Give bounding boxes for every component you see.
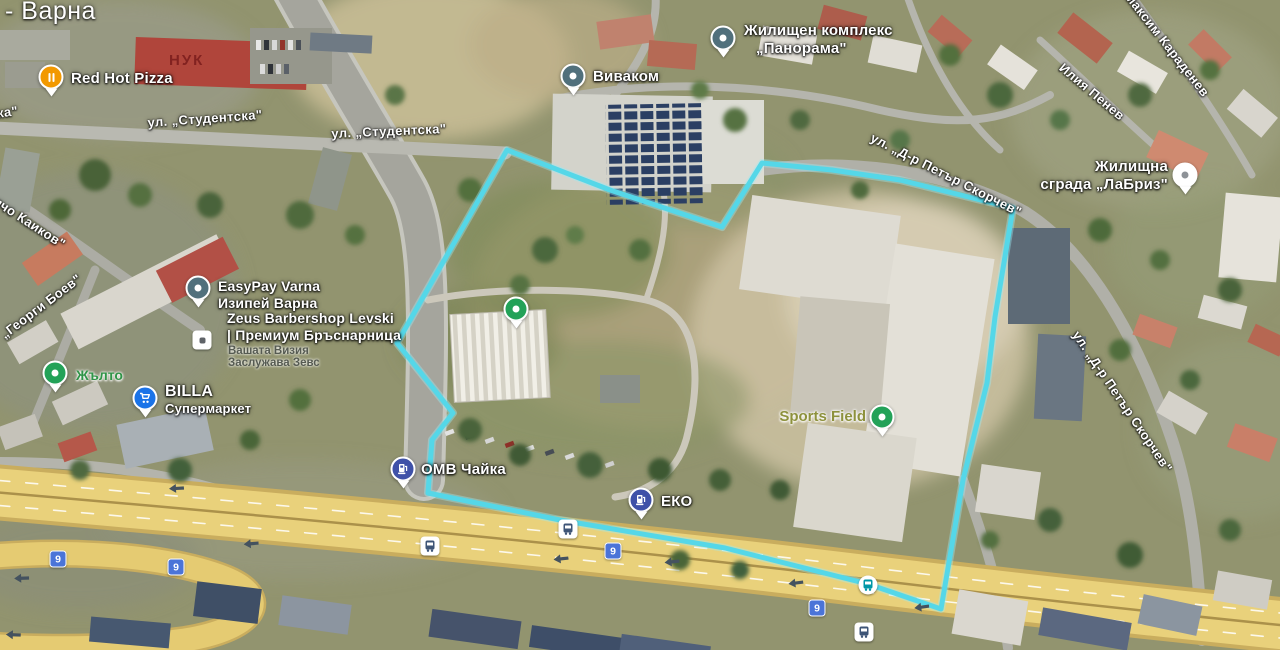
left-arrow-icon bbox=[243, 535, 260, 554]
poi-label-labriz-line2[interactable]: сграда „ЛаБриз" bbox=[1022, 176, 1168, 193]
poi-label-zeus-line2[interactable]: | Премиум Бръснарница bbox=[227, 327, 401, 343]
poi-pin-sports-field[interactable] bbox=[870, 405, 895, 430]
bus-icon bbox=[862, 579, 875, 592]
poi-label-billa-sub[interactable]: Супермаркет bbox=[165, 401, 251, 416]
left-arrow-icon bbox=[664, 553, 681, 572]
left-arrow-icon bbox=[553, 550, 570, 569]
scissors-icon bbox=[199, 337, 205, 343]
poi-label-vivacom[interactable]: Виваком bbox=[593, 68, 659, 85]
place-dot-icon bbox=[195, 285, 202, 292]
place-dot-icon bbox=[52, 370, 59, 377]
place-dot-icon bbox=[570, 73, 577, 80]
poi-label-zeus-line3: Вашата Визия bbox=[228, 345, 309, 357]
fuel-pump-icon bbox=[397, 463, 410, 476]
poi-pin-zhalto[interactable] bbox=[43, 361, 68, 386]
poi-pin-eko[interactable] bbox=[629, 488, 654, 513]
route-shield-label: 9 bbox=[610, 545, 616, 557]
poi-pin-red-hot-pizza[interactable] bbox=[39, 65, 64, 90]
route-shield-9: 9 bbox=[605, 543, 622, 560]
left-arrow-icon bbox=[913, 598, 930, 618]
street-label-partial: ка" bbox=[0, 103, 19, 121]
place-dot-icon bbox=[1182, 172, 1189, 179]
route-shield-9: 9 bbox=[168, 559, 185, 576]
left-arrow-icon bbox=[787, 574, 804, 594]
building-roof-label-nuk: НУК bbox=[169, 52, 204, 69]
bus-stop-icon[interactable] bbox=[859, 576, 878, 595]
poi-label-zeus-line1[interactable]: Zeus Barbershop Levski bbox=[227, 310, 394, 326]
poi-label-billa[interactable]: BILLA bbox=[165, 383, 213, 401]
poi-pin-labriz[interactable] bbox=[1173, 163, 1198, 188]
poi-label-zeus-line4: Заслужава Зевс bbox=[228, 357, 320, 369]
city-label: - Варна bbox=[5, 0, 96, 26]
restaurant-icon bbox=[45, 71, 57, 83]
left-arrow-icon bbox=[6, 626, 22, 645]
bus-stop-icon[interactable] bbox=[421, 537, 440, 556]
route-shield-label: 9 bbox=[55, 553, 61, 565]
poi-label-sports-field[interactable]: Sports Field bbox=[744, 408, 866, 425]
left-arrow-icon bbox=[14, 570, 30, 589]
poi-label-eko[interactable]: ЕКО bbox=[661, 493, 692, 510]
place-dot-icon bbox=[720, 35, 727, 42]
bus-stop-icon[interactable] bbox=[559, 520, 578, 539]
bus-icon bbox=[858, 626, 871, 639]
poi-label-panorama-line1[interactable]: Жилищен комплекс bbox=[744, 22, 893, 39]
bus-icon bbox=[562, 523, 575, 536]
poi-pin-vivacom[interactable] bbox=[561, 64, 586, 89]
route-shield-9: 9 bbox=[50, 551, 67, 568]
poi-marker-zeus-barbershop[interactable] bbox=[193, 331, 212, 350]
poi-label-labriz-line1[interactable]: Жилищна bbox=[1040, 158, 1168, 175]
satellite-map-canvas[interactable]: 9 9 9 9 - Варна НУК ка" ул. „Студентска"… bbox=[0, 0, 1280, 650]
poi-label-omv[interactable]: ОМВ Чайка bbox=[421, 461, 506, 478]
place-dot-icon bbox=[513, 306, 520, 313]
poi-label-zhalto[interactable]: Жълто bbox=[76, 367, 123, 383]
poi-label-easypay-line1[interactable]: EasyPay Varna bbox=[218, 278, 320, 294]
fuel-pump-icon bbox=[635, 494, 648, 507]
route-shield-label: 9 bbox=[173, 561, 179, 573]
left-arrow-icon bbox=[169, 480, 185, 499]
poi-pin-easypay[interactable] bbox=[186, 276, 211, 301]
route-shield-label: 9 bbox=[814, 602, 820, 614]
poi-label-easypay-line2[interactable]: Изипей Варна bbox=[218, 295, 317, 311]
poi-label-red-hot-pizza[interactable]: Red Hot Pizza bbox=[71, 70, 173, 87]
poi-pin-omv[interactable] bbox=[391, 457, 416, 482]
place-dot-icon bbox=[879, 414, 886, 421]
bus-icon bbox=[424, 540, 437, 553]
bus-stop-icon[interactable] bbox=[855, 623, 874, 642]
poi-pin-billa[interactable] bbox=[133, 386, 158, 411]
poi-label-panorama-line2[interactable]: „Панорама" bbox=[756, 40, 847, 57]
poi-pin-unnamed-place[interactable] bbox=[504, 297, 529, 322]
route-shield-9: 9 bbox=[809, 600, 826, 617]
poi-pin-panorama[interactable] bbox=[711, 26, 736, 51]
shopping-cart-icon bbox=[139, 392, 152, 405]
